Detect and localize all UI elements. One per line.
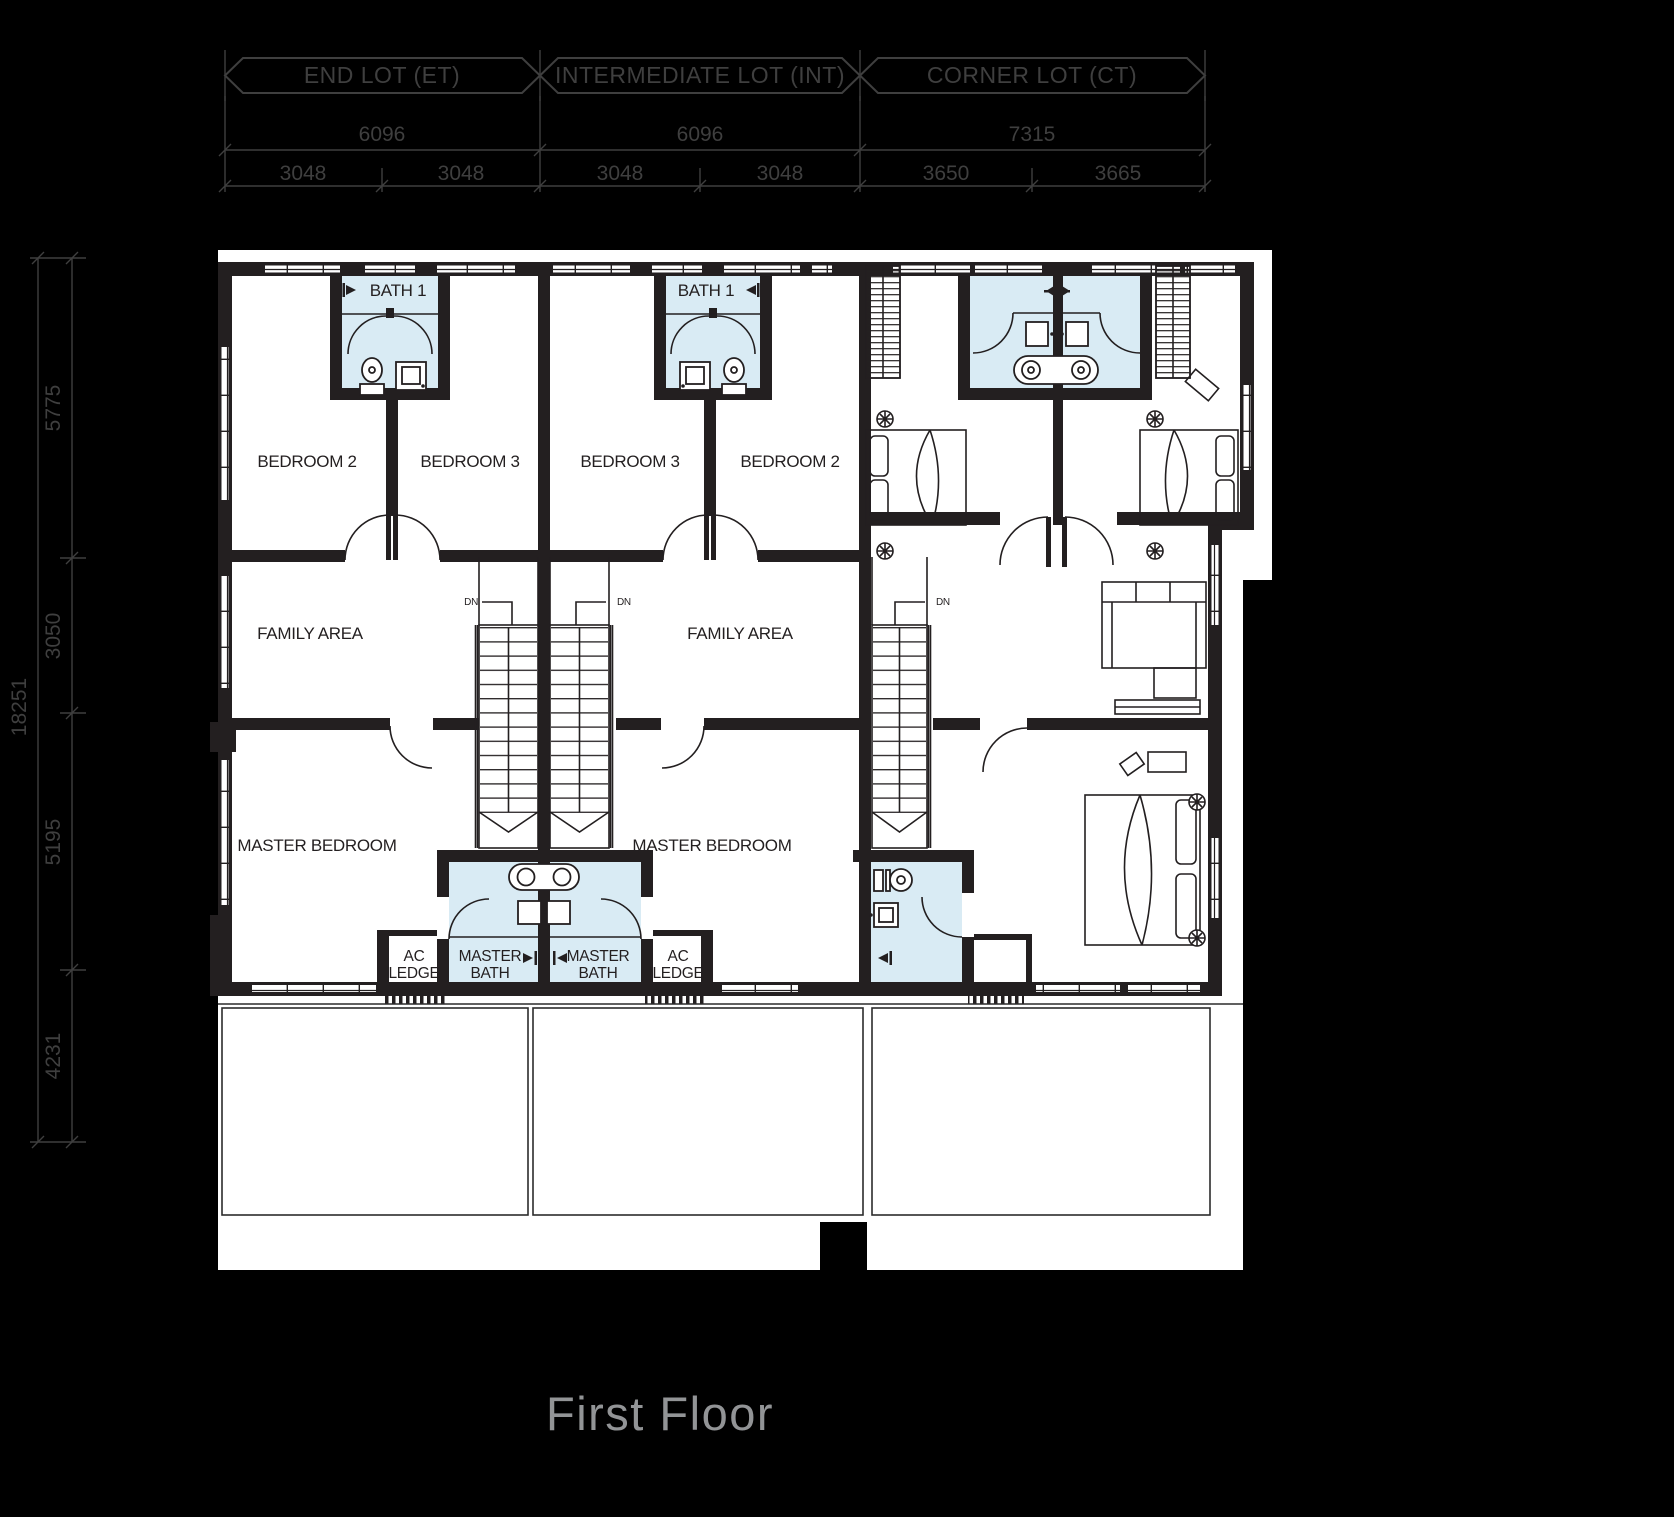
label-master-bath-end-1: MASTER — [459, 948, 522, 965]
wardrobe-right — [1156, 266, 1190, 378]
floor-plan-page: END LOT (ET) INTERMEDIATE LOT (INT) CORN… — [0, 0, 1674, 1517]
down-label-end: DN — [464, 597, 478, 608]
dim-left-4231: 4231 — [42, 1033, 65, 1080]
label-ac-ledge-int-2: LEDGE — [652, 965, 703, 982]
banner-intermediate-lot: INTERMEDIATE LOT (INT) — [555, 62, 845, 88]
dim-sub-3048-d: 3048 — [757, 162, 804, 185]
dim-left-5775: 5775 — [42, 385, 65, 432]
dim-sub-3048-a: 3048 — [280, 162, 327, 185]
wardrobe-left — [866, 266, 900, 378]
label-ac-ledge-end-1: AC — [404, 948, 425, 965]
dim-left-5195: 5195 — [42, 819, 65, 866]
label-ac-ledge-int-1: AC — [668, 948, 689, 965]
dim-sub-3665: 3665 — [1095, 162, 1142, 185]
dim-left-3050: 3050 — [42, 613, 65, 660]
banner-corner-lot: CORNER LOT (CT) — [927, 62, 1137, 88]
dim-top-6096-a: 6096 — [359, 123, 406, 146]
page-title: First Floor — [380, 1386, 940, 1441]
room-label-bedroom3-int: BEDROOM 3 — [580, 452, 679, 471]
room-label-bath1-int: BATH 1 — [678, 281, 734, 300]
label-master-bath-int-2: BATH — [579, 965, 618, 982]
room-label-master-int: MASTER BEDROOM — [632, 836, 791, 855]
dim-top-7315: 7315 — [1009, 123, 1056, 146]
dim-sub-3048-b: 3048 — [438, 162, 485, 185]
left-dimensions: 18251 5775 3050 5195 4231 — [8, 252, 86, 1148]
dim-top-6096-b: 6096 — [677, 123, 724, 146]
room-label-master-end: MASTER BEDROOM — [237, 836, 396, 855]
label-master-bath-end-2: BATH — [471, 965, 510, 982]
down-label-intermediate: DN — [617, 597, 631, 608]
room-label-bedroom3-end: BEDROOM 3 — [420, 452, 519, 471]
room-label-family-int: FAMILY AREA — [687, 624, 794, 643]
down-label-corner: DN — [936, 597, 950, 608]
dim-sub-3048-c: 3048 — [597, 162, 644, 185]
dim-sub-3650: 3650 — [923, 162, 970, 185]
room-label-bedroom2-end: BEDROOM 2 — [257, 452, 356, 471]
room-label-family-end: FAMILY AREA — [257, 624, 364, 643]
label-master-bath-int-1: MASTER — [567, 948, 630, 965]
lot-banners: END LOT (ET) INTERMEDIATE LOT (INT) CORN… — [225, 50, 1205, 101]
floor-plan-drawing: END LOT (ET) INTERMEDIATE LOT (INT) CORN… — [0, 0, 1674, 1517]
building-slab — [218, 250, 1272, 1270]
room-label-bath1-end: BATH 1 — [370, 281, 426, 300]
top-dimensions: 6096 6096 7315 3048 3048 3048 3048 3650 … — [219, 96, 1211, 192]
label-ac-ledge-end-2: LEDGE — [388, 965, 439, 982]
room-label-bedroom2-int: BEDROOM 2 — [740, 452, 839, 471]
dim-left-total: 18251 — [8, 678, 31, 736]
banner-end-lot: END LOT (ET) — [304, 62, 460, 88]
